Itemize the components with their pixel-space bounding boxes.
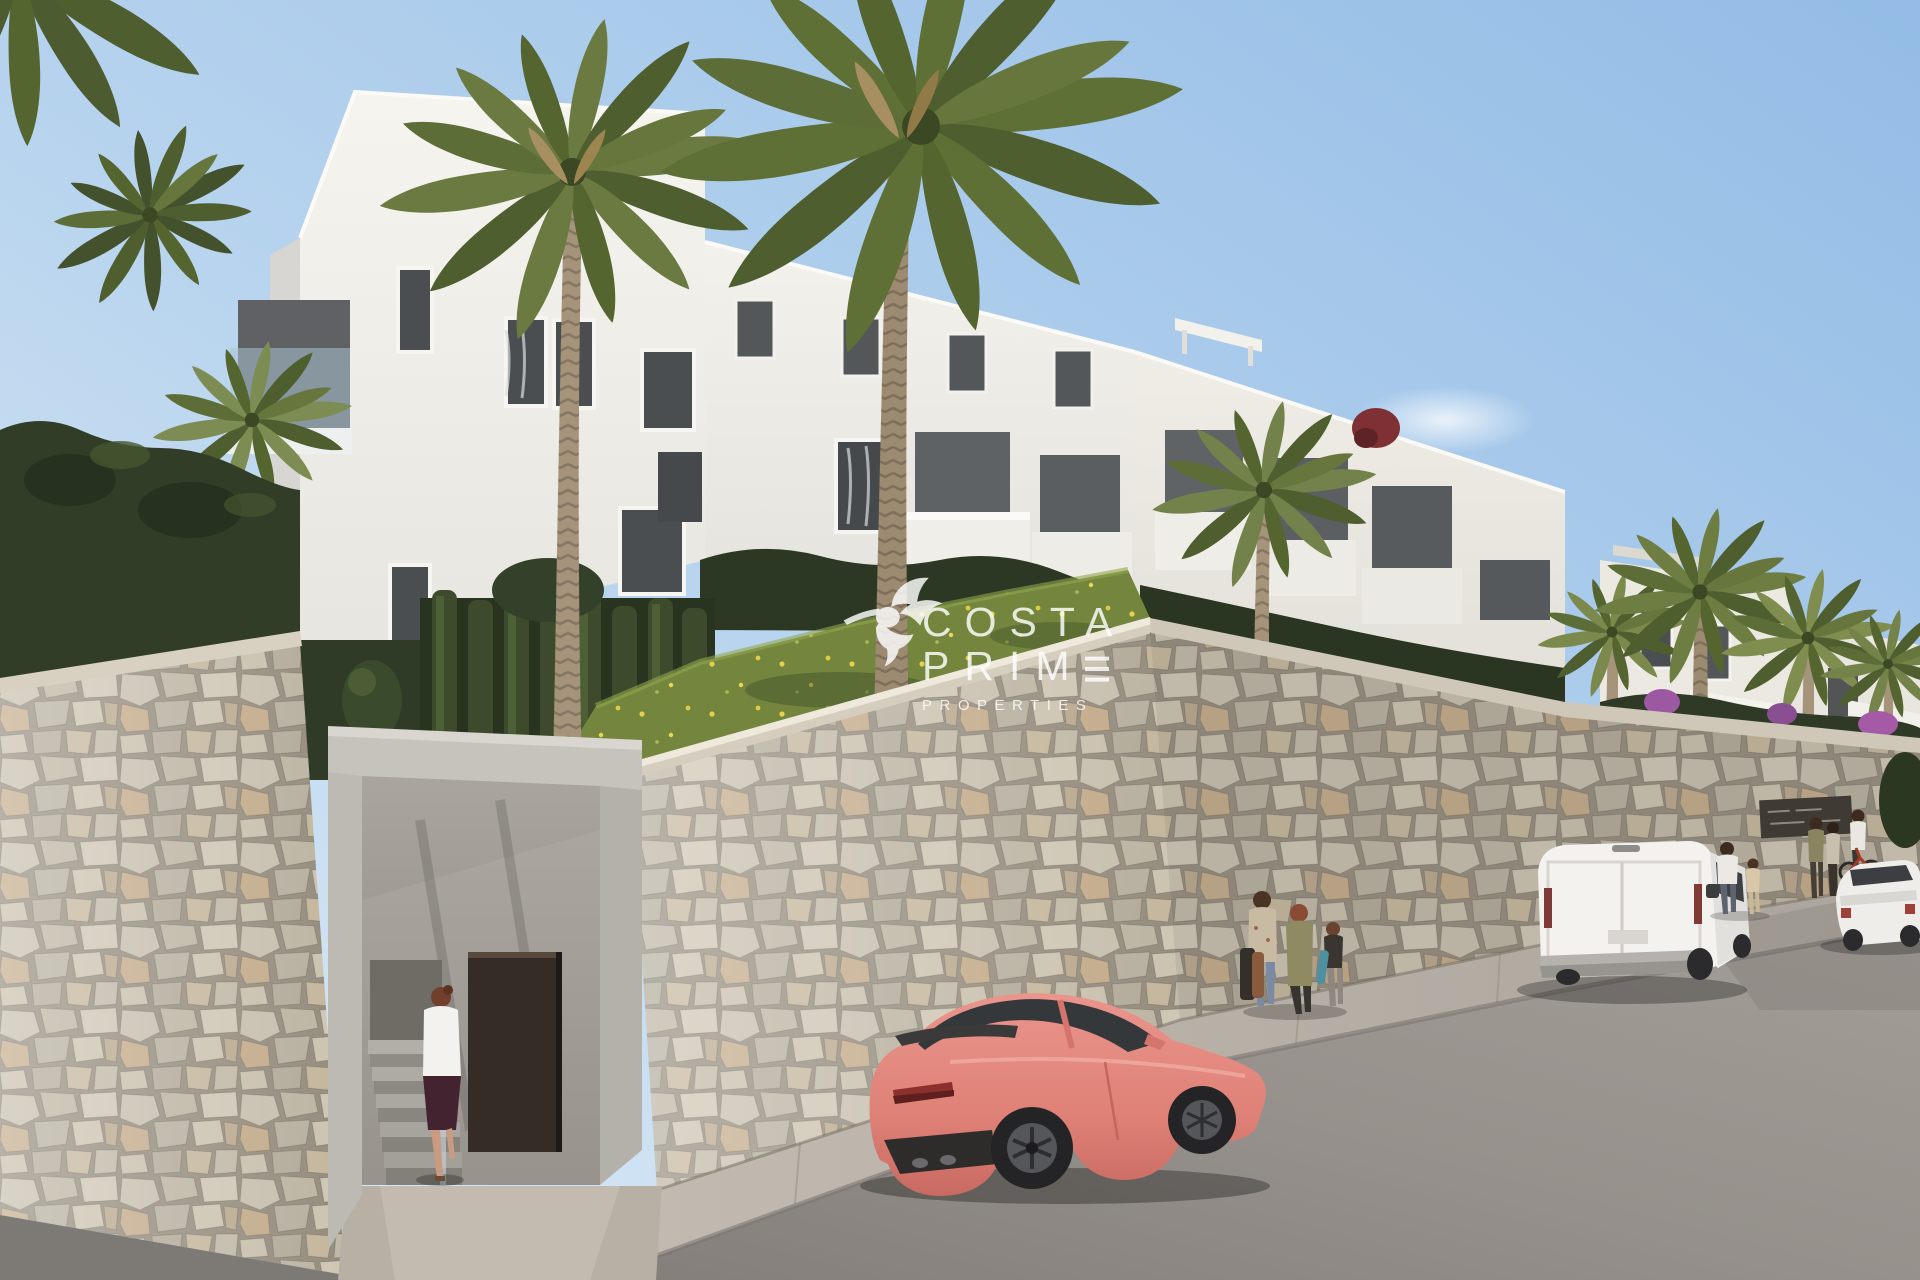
entrance-portal [328,726,642,1250]
wall-plaque [1759,796,1853,839]
scene-canvas [0,0,1920,1280]
render-image: COSTA PRIM PROPERTIES [0,0,1920,1280]
entrance-door [468,952,562,1152]
van-mirror [1706,884,1719,898]
stone-wall-left [0,631,345,1275]
